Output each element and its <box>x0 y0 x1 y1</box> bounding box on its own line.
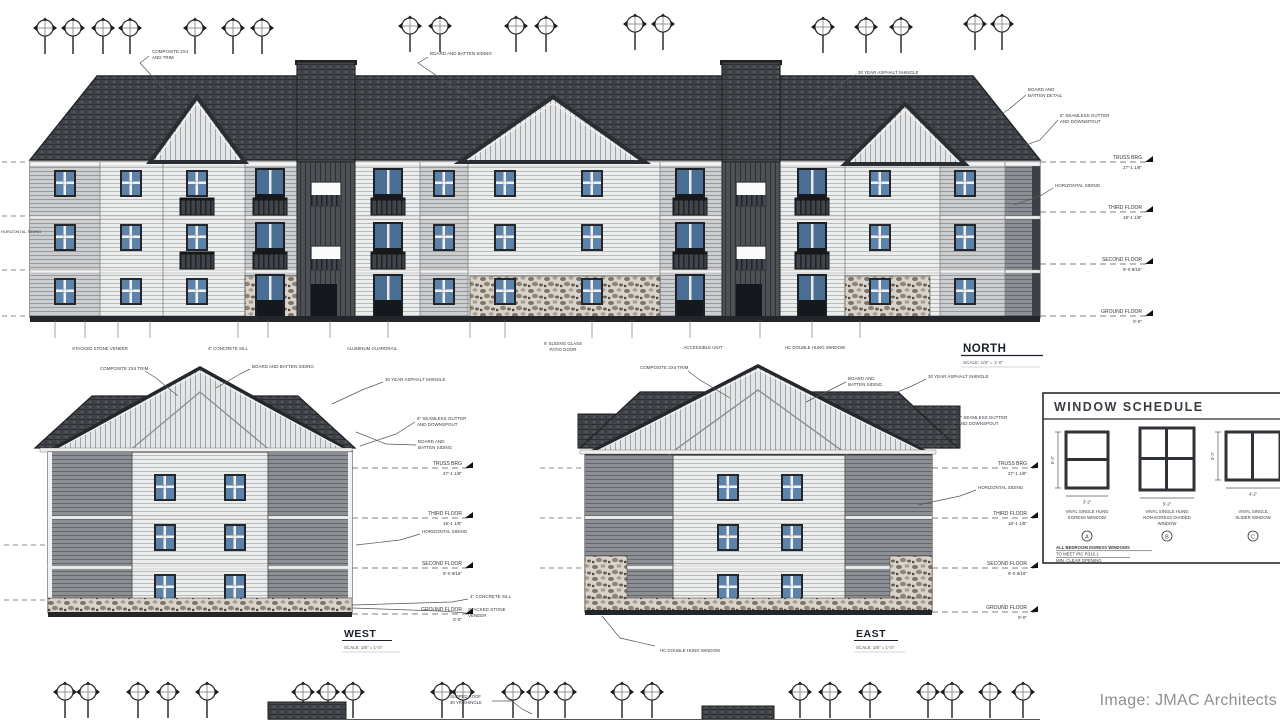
note-line: MIN. CLEAR OPENING <box>1056 558 1102 563</box>
east-title-block: EAST SCALE: 1/8" = 1'-0" <box>854 628 905 652</box>
level-label: TRUSS BRG <box>1113 155 1142 161</box>
callout-gutter: 6" SEAMLESS GUTTER <box>958 415 1008 420</box>
dim-height: 3'-2" <box>1210 451 1215 460</box>
level-elev: 27'-1 1/8" <box>1123 165 1142 170</box>
level-elev: 9'-0 9/16" <box>1008 571 1027 576</box>
north-entry-door-right <box>736 284 762 318</box>
callout-gutter: AND DOWNSPOUT <box>958 421 999 426</box>
level-elev: 0'-0" <box>1018 615 1027 620</box>
callout-hc-window: HC DOUBLE HUNG WINDOW <box>785 345 846 350</box>
window-caption: NON-EGRESS DIVIDED <box>1143 515 1191 520</box>
callout-hc-window: HC DOUBLE HUNG WINDOW <box>660 648 721 653</box>
window-schedule-title: WINDOW SCHEDULE <box>1054 400 1204 414</box>
callout-batten-detail: BATTEN DETAIL <box>1028 93 1063 98</box>
north-elevation: HORIZONTAL SIDING TRUSS BRG 27'-1 1/8" T… <box>1 49 1153 367</box>
callout-gutter: 6" SEAMLESS GUTTER <box>417 416 467 421</box>
level-label: THIRD FLOOR <box>1108 205 1142 211</box>
callout-board-batten: BOARD AND <box>418 439 445 444</box>
level-label: SECOND FLOOR <box>987 561 1027 567</box>
window-schedule: WINDOW SCHEDULE 5'-2" 3'-2" VINYL SINGLE… <box>1043 393 1280 563</box>
level-elev: 27'-1 1/8" <box>1008 471 1027 476</box>
east-base <box>585 610 932 615</box>
east-scale: SCALE: 1/8" = 1'-0" <box>856 645 895 650</box>
level-label: SECOND FLOOR <box>422 561 462 567</box>
north-base <box>30 316 1040 322</box>
window-caption: EGRESS WINDOW <box>1068 515 1107 520</box>
callout-shingle: 30 YEAR ASPHALT SHINGLE <box>858 70 919 75</box>
callout-gutter: 6" SEAMLESS GUTTER <box>1060 113 1110 118</box>
callout-trim: COMPOSITE 2X4 <box>152 49 189 54</box>
callout-site-roof: 30 YR SHINGLE <box>450 700 482 705</box>
level-elev: 0'-0" <box>453 617 462 622</box>
callout-patio-door: PATIO DOOR <box>550 347 577 352</box>
north-scale: SCALE: 1/8" = 1'-0" <box>963 360 1003 365</box>
callout-accessible: ACCESSIBLE UNIT <box>683 345 722 350</box>
callout-board-batten: BATTEN SIDING <box>848 382 883 387</box>
callout-trim: AND TRIM <box>152 55 174 60</box>
level-elev: 18'-1 1/8" <box>1008 521 1027 526</box>
callout-trim: COMPOSITE 2X4 TRIM <box>640 365 689 370</box>
level-elev: 27'-1 1/8" <box>443 471 462 476</box>
callout-gutter: AND DOWNSPOUT <box>417 422 458 427</box>
dim-width: 4'-2" <box>1249 492 1258 497</box>
callout-stone: STACKED STONE <box>468 607 506 612</box>
west-title: WEST <box>344 628 376 640</box>
east-title: EAST <box>856 628 886 640</box>
west-base <box>48 612 352 617</box>
note-line: ALL BEDROOM EGRESS WINDOWS <box>1056 545 1130 550</box>
east-elevation: TRUSS BRG 27'-1 1/8" THIRD FLOOR 18'-1 1… <box>540 365 1038 653</box>
level-label: TRUSS BRG <box>433 461 462 467</box>
north-title-block: NORTH SCALE: 1/8" = 1'-0" <box>961 343 1043 367</box>
callout-site-roof: SLOPED ROOF <box>450 694 481 699</box>
callout-board-batten: BOARD AND BATTEN SIDING <box>252 364 314 369</box>
level-elev: 9'-0 9/16" <box>1123 267 1142 272</box>
callout-horizontal-siding: HORIZONTAL SIDING <box>422 529 468 534</box>
site-trees-bottom <box>53 682 1035 719</box>
window-caption: WINDOW <box>1158 521 1178 526</box>
north-left-level-lines <box>2 162 30 316</box>
level-label: THIRD FLOOR <box>428 511 462 517</box>
level-elev: 18'-1 1/8" <box>443 521 462 526</box>
level-label: SECOND FLOOR <box>1102 257 1142 263</box>
callout-stone: STACKED STONE VENEER <box>72 346 128 351</box>
dim-width: 3'-2" <box>1083 500 1092 505</box>
site-roof-ridge-left <box>268 702 346 719</box>
window-caption: SLIDER WINDOW <box>1235 515 1272 520</box>
callout-gutter: AND DOWNSPOUT <box>1060 119 1101 124</box>
callout-board-batten: BOARD AND <box>848 376 875 381</box>
callout-shingle: 30 YEAR ASPHALT SHINGLE <box>928 374 989 379</box>
west-scale: SCALE: 1/8" = 1'-0" <box>344 645 383 650</box>
level-label: TRUSS BRG <box>998 461 1027 467</box>
site-bottom: SLOPED ROOF 30 YR SHINGLE <box>53 682 1040 720</box>
north-level-markers: TRUSS BRG 27'-1 1/8" THIRD FLOOR 18'-1 1… <box>1040 155 1153 324</box>
level-label: GROUND FLOOR <box>986 605 1027 611</box>
callout-guardrail: ALUMINUM GUARDRAIL <box>347 346 398 351</box>
callout-sill: 4" CONCRETE SILL <box>208 346 249 351</box>
site-roof-ridge-right <box>702 706 774 719</box>
callout-trim: COMPOSITE 2X4 TRIM <box>100 366 149 371</box>
north-left-siding-label: HORIZONTAL SIDING <box>1 229 41 234</box>
callout-horizontal-siding: HORIZONTAL SIDING <box>1055 183 1101 188</box>
window-tag: A <box>1085 535 1089 541</box>
callout-board-batten: BOARD AND BATTEN SIDING <box>430 51 492 56</box>
window-tag: C <box>1251 535 1255 541</box>
window-caption: VINYL SINGLE HUNG <box>1145 509 1189 514</box>
window-tag: B <box>1165 535 1169 541</box>
north-entry-door-left <box>311 284 337 318</box>
callout-batten-detail: BOARD AND <box>1028 87 1055 92</box>
elevation-drawing: HORIZONTAL SIDING TRUSS BRG 27'-1 1/8" T… <box>0 0 1280 720</box>
site-trees-top <box>33 14 1014 55</box>
dim-height: 5'-2" <box>1050 455 1055 464</box>
note-line: TO MEET IRC R310.1 <box>1056 552 1099 557</box>
west-stone-base <box>48 598 352 614</box>
callout-horizontal-siding: HORIZONTAL SIDING <box>978 485 1024 490</box>
west-title-block: WEST SCALE: 1/8" = 1'-0" <box>342 628 400 652</box>
callout-board-batten: BATTEN SIDING <box>418 445 453 450</box>
level-label: GROUND FLOOR <box>1101 309 1142 315</box>
level-label: THIRD FLOOR <box>993 511 1027 517</box>
west-elevation: TRUSS BRG 27'-1 1/8" THIRD FLOOR 18'-1 1… <box>4 364 512 652</box>
callout-sill: 4" CONCRETE SILL <box>470 594 512 599</box>
callout-shingle: 30 YEAR ASPHALT SHINGLE <box>385 377 446 382</box>
west-level-markers: TRUSS BRG 27'-1 1/8" THIRD FLOOR 18'-1 1… <box>352 461 473 622</box>
north-title: NORTH <box>963 343 1006 355</box>
north-stair-tower-left-top <box>297 62 355 162</box>
dim-width: 5'-2" <box>1163 502 1172 507</box>
window-caption: VINYL SINGLE <box>1238 509 1267 514</box>
elevation-sheet: HORIZONTAL SIDING TRUSS BRG 27'-1 1/8" T… <box>0 0 1280 720</box>
level-elev: 18'-1 1/8" <box>1123 215 1142 220</box>
image-credit: Image: JMAC Architects <box>1100 692 1277 710</box>
level-elev: 9'-0 9/16" <box>443 571 462 576</box>
level-elev: 0'-0" <box>1133 319 1142 324</box>
north-stair-tower-right-top <box>722 62 780 162</box>
window-caption: VINYL SINGLE HUNG <box>1065 509 1109 514</box>
callout-stone: VENEER <box>468 613 487 618</box>
callout-patio-door: 6' SLIDING GLASS <box>544 341 582 346</box>
